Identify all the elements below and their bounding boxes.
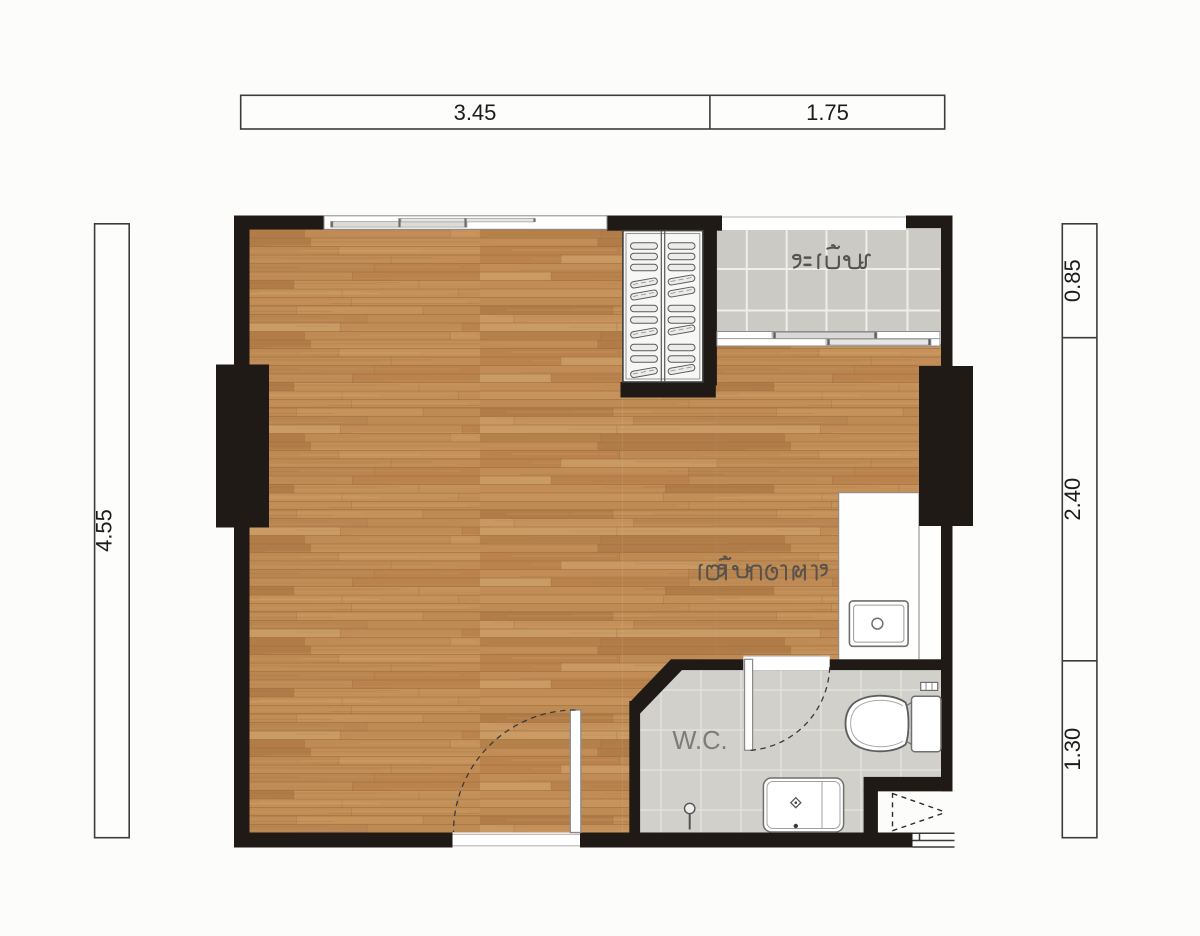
svg-text:3.45: 3.45 (454, 100, 497, 125)
svg-text:1.30: 1.30 (1060, 728, 1085, 771)
svg-text:1.75: 1.75 (806, 100, 849, 125)
svg-text:W.C.: W.C. (672, 727, 727, 755)
svg-text:4.55: 4.55 (92, 509, 117, 552)
svg-text:2.40: 2.40 (1060, 478, 1085, 521)
svg-text:0.85: 0.85 (1060, 259, 1085, 302)
